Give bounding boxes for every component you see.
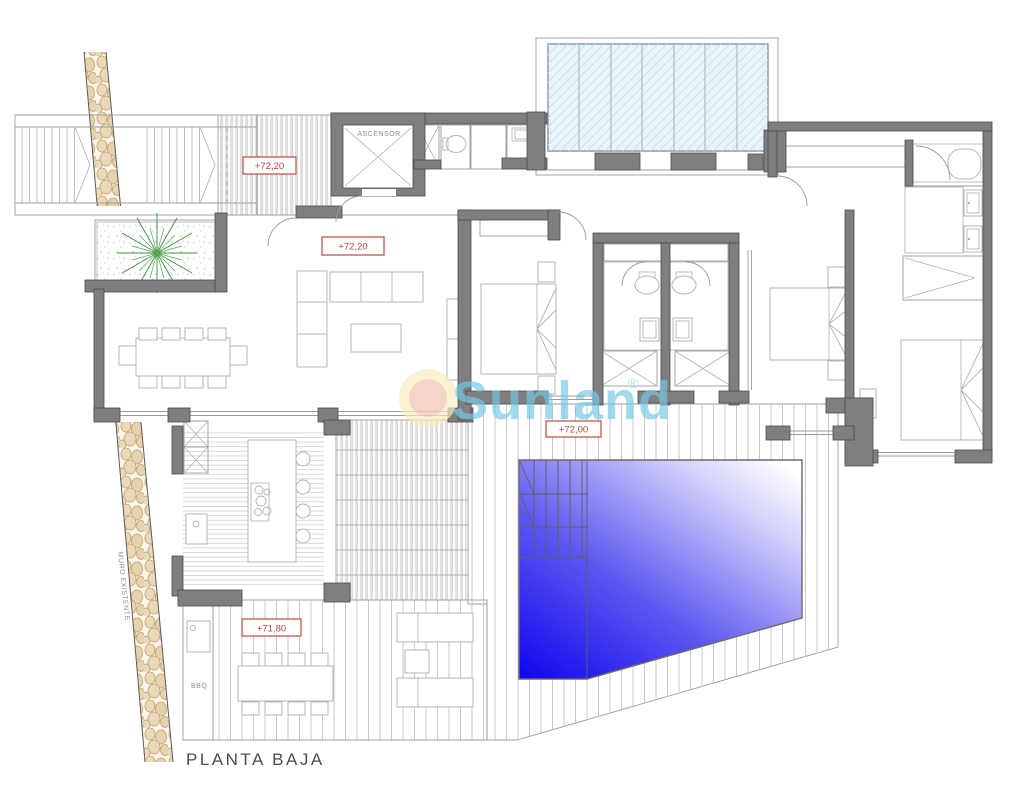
wardrobe (480, 220, 548, 236)
wardrobe (779, 146, 905, 167)
chair (139, 328, 157, 340)
chair (208, 376, 226, 388)
sun-lounger (397, 678, 473, 707)
side-table (405, 650, 429, 673)
chair (288, 702, 305, 715)
watermark-text: Sunland (452, 371, 672, 431)
chair (162, 328, 180, 340)
level-label-living: +72,20 (322, 237, 384, 255)
sofa (330, 272, 423, 302)
bathtub (948, 149, 981, 179)
stair-direction-arrow (200, 127, 215, 203)
master-bathroom (779, 144, 983, 300)
kitchen-pergola-deck (336, 420, 468, 600)
floorplan-drawing: ASCENSOR BBQ MURO EXISTENTE +72,20 +72,2… (0, 0, 1024, 800)
bar-stool (296, 480, 310, 494)
chair (242, 653, 259, 666)
bedroom-2 (770, 267, 847, 380)
registered-mark: ® (628, 375, 639, 391)
toilet (672, 276, 696, 294)
chair (230, 346, 247, 365)
bed (481, 284, 556, 374)
coffee-table (351, 324, 401, 352)
chair (242, 702, 259, 715)
svg-text:+72,20: +72,20 (255, 161, 284, 172)
bbq-label: BBQ (191, 683, 207, 690)
bedroom-1 (480, 220, 556, 394)
toilet (635, 276, 659, 294)
bed (770, 288, 847, 360)
bar-stool (296, 452, 310, 466)
chair (119, 346, 136, 365)
sofa-corner (297, 271, 327, 302)
outdoor-table (238, 666, 333, 701)
chair (265, 702, 282, 715)
sun-logo-inner (409, 379, 447, 417)
bed (901, 340, 983, 440)
glass-canopy (536, 38, 778, 175)
watermark: Sunland ® (399, 369, 672, 431)
level-label-terrace: +71,80 (242, 619, 301, 636)
level-label-entrance: +72,20 (243, 157, 296, 174)
chair (185, 328, 203, 340)
chair (185, 376, 203, 388)
page-title: PLANTA BAJA (186, 750, 325, 769)
floorplan-canvas: ASCENSOR BBQ MURO EXISTENTE +72,20 +72,2… (0, 0, 1024, 800)
chair (139, 376, 157, 388)
chair (162, 376, 180, 388)
bedroom-3 (860, 340, 983, 440)
bbq-counter (187, 621, 210, 652)
chair (311, 702, 328, 715)
shower (903, 256, 983, 300)
stair-direction-arrow (75, 127, 90, 203)
dining-table (136, 338, 230, 376)
chair (208, 328, 226, 340)
chair (288, 653, 305, 666)
entry-corridor (471, 125, 506, 169)
elevator-label: ASCENSOR (357, 131, 400, 138)
sofa (297, 302, 327, 367)
svg-text:+71,80: +71,80 (257, 624, 286, 635)
nightstand (538, 262, 555, 282)
chair (265, 653, 282, 666)
nightstand (828, 361, 845, 380)
bar-stool (296, 504, 310, 518)
sun-lounger (397, 613, 473, 642)
svg-text:+72,20: +72,20 (338, 242, 367, 253)
nightstand (828, 267, 845, 287)
chair (311, 653, 328, 666)
kitchen-island (248, 440, 296, 562)
kitchen-sink (186, 514, 207, 544)
bar-stool (296, 529, 310, 543)
